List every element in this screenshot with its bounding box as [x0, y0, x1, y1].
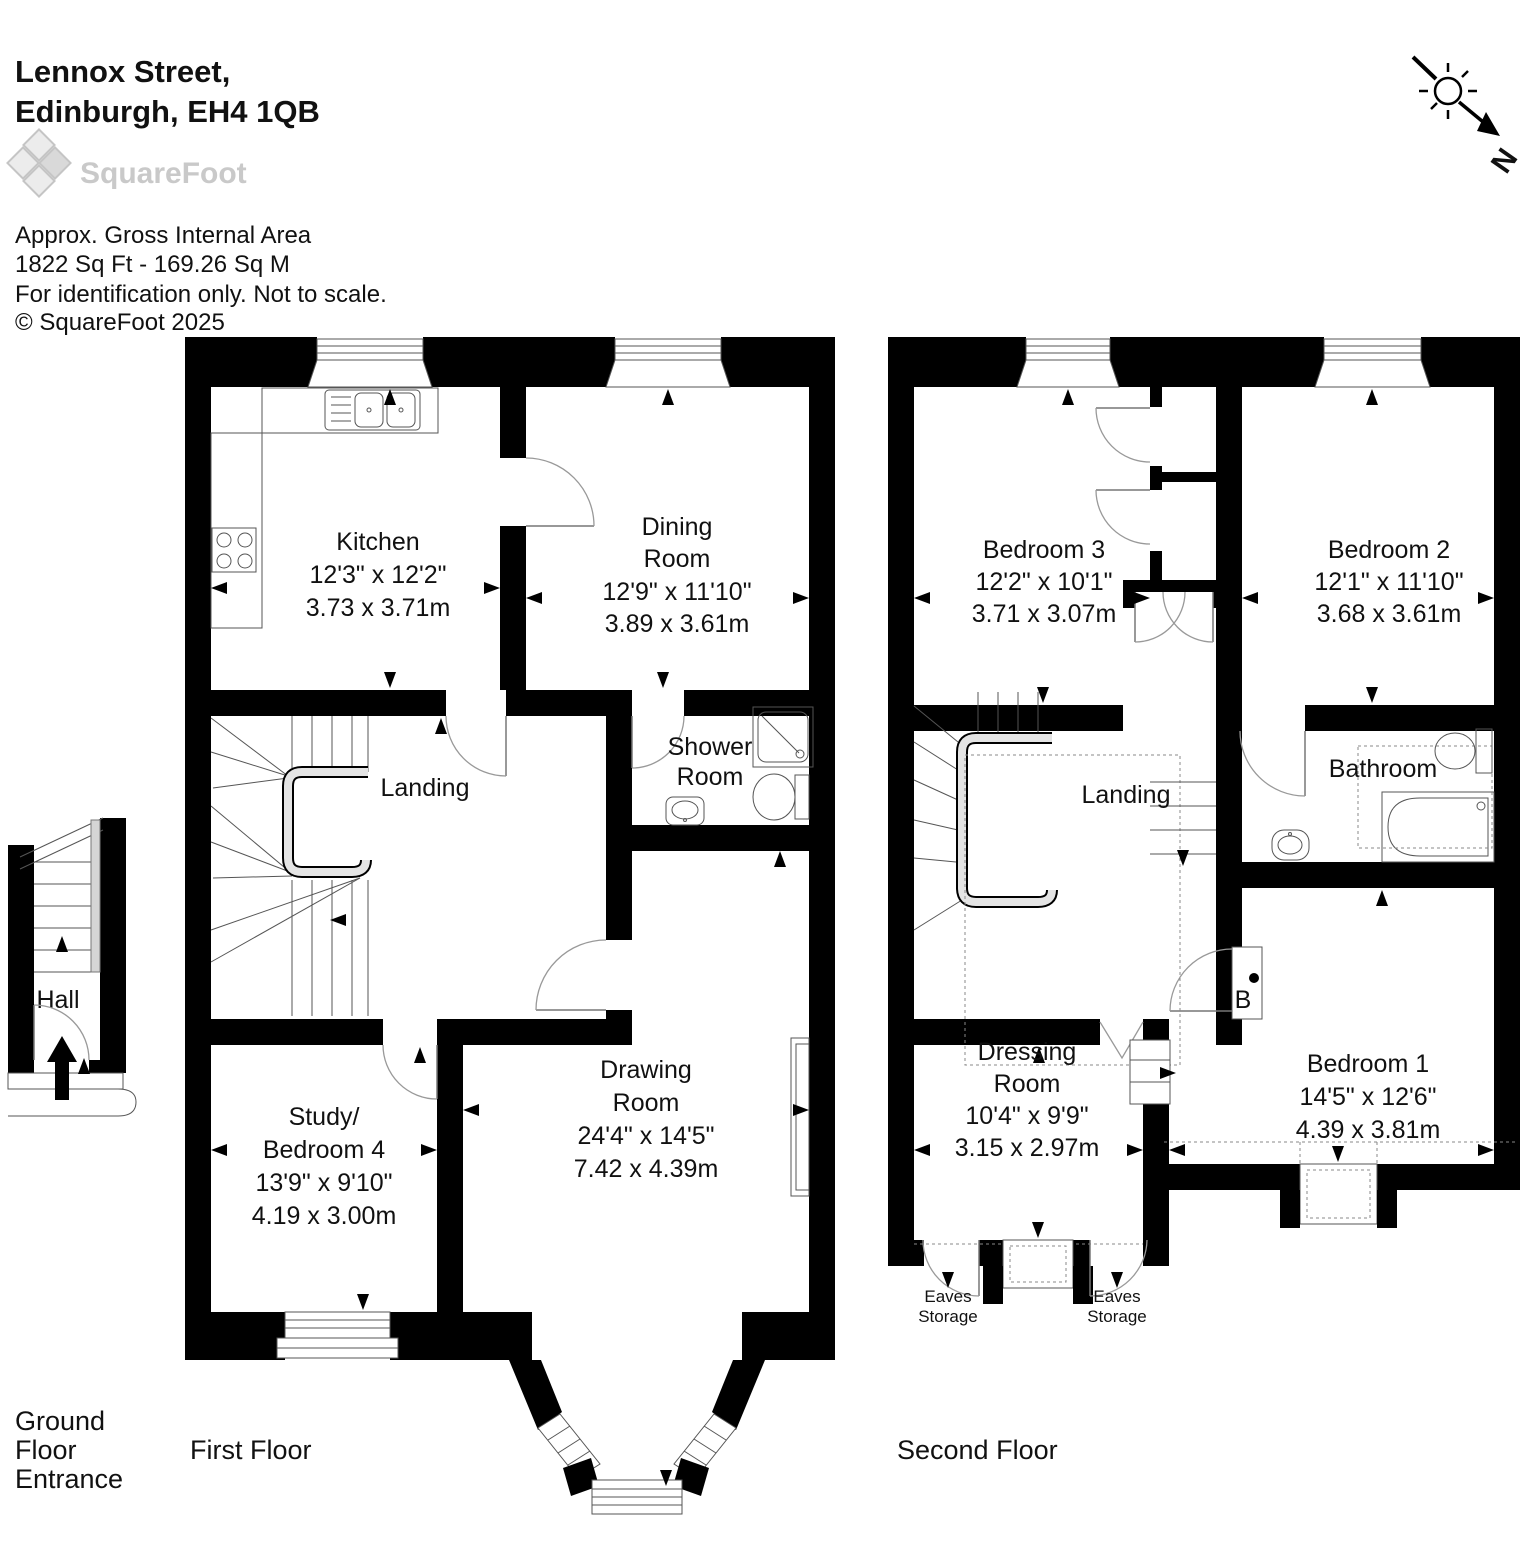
bathroom-label: Bathroom — [1329, 755, 1437, 783]
landing-double-doors — [1135, 592, 1213, 642]
bedroom1-label: Bedroom 1 — [1307, 1050, 1429, 1078]
kitchen-sink — [325, 390, 420, 430]
address-line-1: Lennox Street, — [15, 54, 230, 89]
kitchen-label: Kitchen — [336, 528, 419, 556]
bedroom2-window — [1315, 339, 1430, 387]
north-label: N — [1484, 142, 1523, 179]
dressing-dims-m: 3.15 x 2.97m — [955, 1134, 1100, 1162]
first-floor-label: First Floor — [190, 1435, 312, 1465]
dining-window — [606, 339, 730, 387]
landing-second-label: Landing — [1082, 781, 1171, 809]
ground-floor-label-3: Entrance — [15, 1464, 123, 1494]
squarefoot-logo-icon — [7, 129, 70, 196]
drawing-room-alcove — [791, 1038, 809, 1196]
second-floor-stairs — [914, 692, 1216, 1065]
eaves-left-label-1: Eaves — [924, 1287, 971, 1306]
ground-floor-plan: Hall — [8, 818, 136, 1116]
squarefoot-logo-text: SquareFoot — [80, 157, 247, 190]
toilet — [753, 774, 809, 820]
header: Lennox Street, Edinburgh, EH4 1QB Square… — [7, 54, 386, 336]
kitchen-dining-door — [526, 458, 594, 526]
bedroom3-window — [1017, 339, 1119, 387]
dressing-hatch — [1130, 1040, 1176, 1104]
area-line-1: Approx. Gross Internal Area — [15, 222, 312, 249]
entrance-arrow — [47, 1036, 90, 1100]
floorplan-page: Lennox Street, Edinburgh, EH4 1QB Square… — [0, 0, 1536, 1536]
kitchen-landing-door — [446, 716, 506, 776]
dressing-label-2: Room — [994, 1070, 1061, 1098]
dining-label-2: Room — [644, 545, 711, 573]
eaves-right-label-2: Storage — [1087, 1307, 1147, 1326]
basin — [666, 797, 704, 825]
shower-label-2: Room — [677, 763, 744, 791]
cupboard-doors — [1096, 408, 1150, 544]
drawing-dims-ft: 24'4" x 14'5" — [577, 1122, 714, 1150]
second-floor-label: Second Floor — [897, 1435, 1058, 1465]
address-line-2: Edinburgh, EH4 1QB — [15, 94, 320, 129]
kitchen-window — [308, 339, 432, 387]
hob — [212, 528, 256, 572]
bedroom1-dims-m: 4.39 x 3.81m — [1296, 1116, 1441, 1144]
second-floor-plan: B — [888, 337, 1520, 1326]
kitchen-dims-m: 3.73 x 3.71m — [306, 594, 451, 622]
study-window — [277, 1312, 398, 1358]
bedroom1-dims-ft: 14'5" x 12'6" — [1299, 1083, 1436, 1111]
entrance-steps — [8, 1073, 136, 1116]
floorplan-svg: Lennox Street, Edinburgh, EH4 1QB Square… — [0, 0, 1536, 1536]
toilet-second — [1435, 729, 1492, 773]
dining-dims-ft: 12'9" x 11'10" — [602, 578, 751, 606]
area-line-3: For identification only. Not to scale. — [15, 281, 387, 308]
bedroom2-door — [1240, 731, 1305, 796]
dressing-dims-ft: 10'4" x 9'9" — [965, 1102, 1088, 1130]
north-arrow-icon: N — [1413, 57, 1523, 178]
basin-second — [1272, 830, 1309, 860]
eaves-right-label-1: Eaves — [1093, 1287, 1140, 1306]
copyright-line: © SquareFoot 2025 — [15, 309, 225, 336]
ground-floor-label-1: Ground — [15, 1406, 105, 1436]
drawing-room-door — [536, 940, 606, 1010]
dining-label-1: Dining — [642, 513, 713, 541]
ground-floor-label-2: Floor — [15, 1435, 77, 1465]
hall-stairs — [34, 820, 100, 978]
first-floor-stairs — [211, 716, 372, 1016]
drawing-label-2: Room — [613, 1089, 680, 1117]
bay-window — [509, 1360, 765, 1514]
area-line-2: 1822 Sq Ft - 169.26 Sq M — [15, 251, 290, 278]
kitchen-dims-ft: 12'3" x 12'2" — [309, 561, 446, 589]
shower-label-1: Shower — [668, 733, 753, 761]
bedroom2-dims-m: 3.68 x 3.61m — [1317, 600, 1462, 628]
study-label-2: Bedroom 4 — [263, 1136, 385, 1164]
bedroom3-label: Bedroom 3 — [983, 536, 1105, 564]
bedroom3-dims-ft: 12'2" x 10'1" — [975, 568, 1112, 596]
first-floor-plan: Kitchen 12'3" x 12'2" 3.73 x 3.71m Dinin… — [185, 337, 835, 1514]
landing-first-label: Landing — [381, 774, 470, 802]
bedroom2-dims-ft: 12'1" x 11'10" — [1314, 568, 1463, 596]
eaves-left-label-2: Storage — [918, 1307, 978, 1326]
study-dims-ft: 13'9" x 9'10" — [255, 1169, 392, 1197]
study-label-1: Study/ — [289, 1103, 360, 1131]
study-dims-m: 4.19 x 3.00m — [252, 1202, 397, 1230]
dining-dims-m: 3.89 x 3.61m — [605, 610, 750, 638]
drawing-label-1: Drawing — [600, 1056, 692, 1084]
boiler-label: B — [1235, 986, 1252, 1014]
bedroom3-dims-m: 3.71 x 3.07m — [972, 600, 1117, 628]
study-door — [383, 1045, 437, 1099]
dressing-label-1: Dressing — [978, 1038, 1077, 1066]
bedroom2-label: Bedroom 2 — [1328, 536, 1450, 564]
drawing-dims-m: 7.42 x 4.39m — [574, 1155, 719, 1183]
